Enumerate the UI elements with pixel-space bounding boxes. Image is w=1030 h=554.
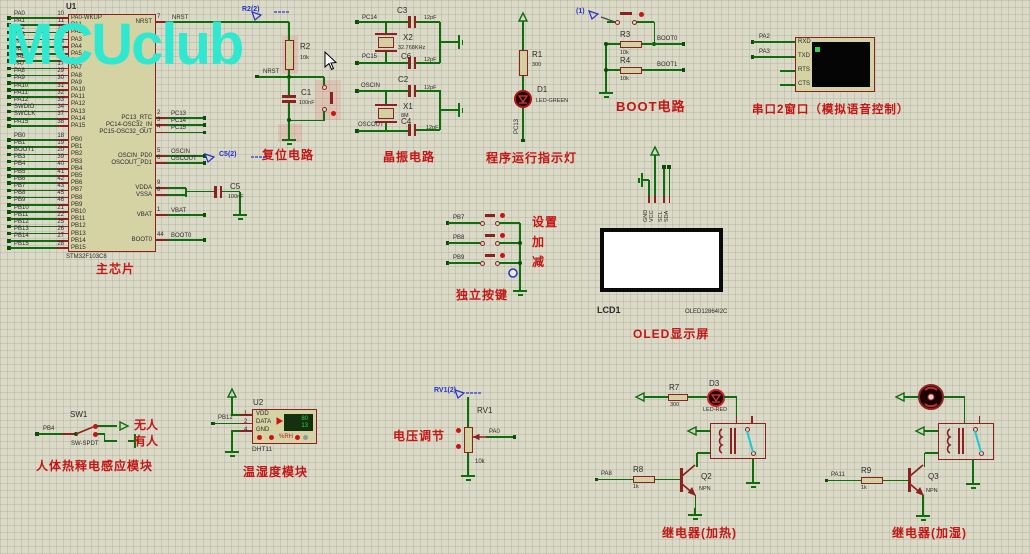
wire: [288, 22, 290, 40]
pin-number: 31: [42, 83, 64, 89]
pin-name: VBAT: [96, 212, 152, 218]
dht-ref: U2: [253, 399, 263, 407]
resistor-R2: [285, 40, 294, 70]
button-cap: [330, 92, 333, 104]
pin-name: PA12: [71, 101, 85, 107]
power-arrow: [651, 147, 659, 155]
led-part-D3: LED-RED: [703, 408, 727, 414]
pin-name: PB13: [71, 231, 86, 237]
ground-symbol: [921, 519, 926, 521]
contact: [973, 427, 978, 432]
pin-number: 45: [42, 190, 64, 196]
actuator-dot[interactable]: [295, 435, 300, 440]
wire: [288, 77, 290, 95]
pin-number: 9: [157, 180, 160, 186]
cap-val-C2: 12pF: [424, 86, 437, 92]
pin-name: PB10: [71, 209, 86, 215]
terminal-pin-TXD: TXD: [798, 53, 810, 59]
pin-number: 32: [42, 90, 64, 96]
net-label-PB8: PB8: [453, 235, 464, 241]
wire: [780, 84, 795, 86]
caption-pir: 人体热释电感应模块: [36, 460, 153, 473]
cap-val-C6: 12pF: [424, 58, 437, 64]
pin-stub: [663, 196, 665, 203]
pin-net-SWCLK: SWCLK: [14, 111, 35, 117]
pin-net-PB0: PB0: [14, 133, 25, 139]
chip-ref: U1: [66, 3, 76, 11]
key-function-PB8: 加: [532, 236, 545, 248]
wire: [167, 187, 186, 189]
pin-net-PA10: PA10: [14, 83, 28, 89]
pin-name: PB6: [71, 180, 82, 186]
res-ref-R8: R8: [633, 466, 643, 474]
pin-name: PB15: [71, 245, 86, 251]
actuator-dot[interactable]: [500, 253, 505, 258]
button-cap: [485, 234, 495, 237]
pin-number: 4: [157, 124, 160, 130]
net-label-PB4: PB4: [43, 426, 54, 432]
ground-symbol: [916, 515, 930, 517]
motor-icon: [919, 385, 943, 409]
switch-ref-SW1: SW1: [70, 411, 87, 419]
cap-ref-C5: C5: [230, 183, 240, 191]
wire: [167, 162, 204, 164]
ground-symbol: [751, 486, 756, 488]
transistor-type-Q2: NPN: [699, 487, 711, 493]
wire: [467, 397, 469, 427]
oled-display: [600, 228, 723, 292]
pin-name: OSCOUT_PD1: [96, 160, 152, 166]
pin-name: PB9: [71, 202, 82, 208]
ground-symbol: [746, 482, 760, 484]
relay-core: [734, 428, 736, 454]
dht-pin-DATA: DATA: [256, 419, 271, 425]
wire: [499, 262, 520, 264]
capacitor: [214, 186, 217, 198]
res-val-R8: 1k: [633, 485, 639, 491]
wire: [655, 479, 680, 481]
terminal-dot: [203, 161, 207, 165]
wire: [696, 453, 698, 467]
wire: [597, 479, 633, 481]
motor-detail-icon: [925, 404, 937, 406]
pin-name: PA15: [71, 123, 85, 129]
pin-net-PB5: PB5: [14, 169, 25, 175]
wire: [925, 452, 939, 454]
terminal-pin-RXD: RXD: [798, 39, 811, 45]
contact[interactable]: [322, 85, 327, 90]
caption-relay-hum: 继电器(加湿): [892, 527, 967, 540]
net-label-PA0: PA0: [489, 429, 500, 435]
net-label-BOOT1: BOOT1: [657, 62, 677, 68]
pin-number: 44: [157, 232, 164, 238]
cap-val-C1: 100nF: [299, 101, 315, 107]
pin-number: 22: [42, 212, 64, 218]
pin-number: 34: [42, 104, 64, 110]
probe-C5: C5(2): [219, 151, 237, 158]
pin-name: PA10: [71, 87, 85, 93]
terminal-screen[interactable]: [812, 42, 870, 87]
wire: [499, 222, 520, 224]
pin-stub: [979, 416, 981, 423]
wire: [606, 69, 620, 71]
wire: [644, 396, 668, 398]
caption-run-led: 程序运行指示灯: [486, 152, 577, 165]
pin-net-PC13: PC13: [171, 111, 186, 117]
wire: [753, 41, 795, 43]
wire: [972, 460, 974, 477]
wire: [214, 423, 240, 425]
res-ref-R4: R4: [620, 57, 630, 65]
relay-core: [730, 428, 732, 454]
pin-net-PA15: PA15: [14, 119, 28, 125]
relay-body: [710, 423, 766, 459]
wire: [385, 123, 387, 130]
transistor-ref-Q2: Q2: [701, 473, 712, 481]
dht-pin-number: 4: [244, 427, 247, 433]
relay-body: [938, 423, 994, 460]
led-D1: [514, 90, 532, 108]
resistor-R7: [668, 394, 688, 401]
cap-ref-C6: C6: [401, 53, 411, 61]
mouse-cursor-icon: [325, 52, 336, 70]
pin-number: 38: [42, 119, 64, 125]
led-ref-D3: D3: [709, 380, 719, 388]
probe-arrow-icon: [205, 154, 214, 162]
pir-state-top: 无人: [134, 419, 158, 431]
relay-core: [962, 428, 964, 454]
net-label-PC14: PC14: [362, 15, 377, 21]
wire: [97, 425, 117, 427]
wire: [922, 495, 924, 509]
ground-symbol: [458, 35, 460, 49]
actuator-dot[interactable]: [456, 444, 461, 449]
pin-name: PB7: [71, 187, 82, 193]
pin-number: 33: [42, 97, 64, 103]
power-arrow: [636, 393, 644, 401]
pin-name: PB8: [71, 195, 82, 201]
select-tint: [315, 80, 341, 120]
pir-state-bottom: 有人: [134, 435, 158, 447]
dht-temp-value: 13: [288, 423, 308, 429]
actuator-dot[interactable]: [269, 435, 274, 440]
contact: [745, 427, 750, 432]
wire: [358, 62, 408, 64]
key-function-PB7: 设置: [532, 216, 558, 228]
collector: [682, 465, 695, 476]
net-label-PB9: PB9: [453, 255, 464, 261]
wire: [440, 41, 452, 43]
wire: [289, 120, 325, 122]
pin-net-PB7: PB7: [14, 183, 25, 189]
power-arrow: [120, 422, 128, 430]
terminal-dot: [255, 75, 259, 79]
ground-symbol: [282, 139, 296, 141]
res-ref-R7: R7: [669, 384, 679, 392]
pin-net-OSCOUT: OSCOUT: [171, 156, 197, 162]
wire: [499, 242, 520, 244]
wire: [323, 77, 325, 85]
pin-number: 2: [157, 110, 160, 116]
pin-net-PB15: PB15: [14, 241, 29, 247]
contact[interactable]: [480, 221, 485, 226]
xtal-ref-X2: X2: [403, 34, 413, 42]
cap-val-C4: 12pF: [426, 126, 439, 132]
net-label-BOOT0: BOOT0: [657, 36, 677, 42]
pot-body-RV1: [464, 427, 473, 453]
button-cap: [620, 12, 632, 15]
dht-pin-number: 2: [244, 419, 247, 425]
caption-oled: OLED显示屏: [633, 328, 709, 341]
pot-wiper-arrow: [474, 435, 479, 440]
pin-number: 46: [42, 197, 64, 203]
pin-net-PB11: PB11: [14, 212, 28, 218]
pin-number: 5: [157, 148, 160, 154]
contact[interactable]: [480, 261, 485, 266]
relay-core: [958, 428, 960, 454]
pin-net-PC15: PC15: [171, 125, 186, 131]
pin-net-BOOT1: BOOT1: [14, 147, 34, 153]
net-label-PA8: PA8: [601, 471, 612, 477]
wire: [642, 43, 683, 45]
pin-number: 39: [42, 154, 64, 160]
pin-name: PC13_RTC: [96, 115, 152, 121]
caption-crystal: 晶振电路: [383, 151, 435, 164]
pin-net-PB6: PB6: [14, 176, 25, 182]
wire: [695, 495, 697, 508]
ground-symbol: [233, 214, 247, 216]
contact: [979, 451, 984, 456]
pot-val-RV1: 10k: [475, 459, 485, 465]
resistor-R1: [519, 50, 528, 76]
wire: [167, 194, 186, 196]
pin-stub: [156, 132, 167, 134]
contact: [751, 451, 756, 456]
wire: [358, 130, 408, 132]
actuator-dot[interactable]: [257, 435, 262, 440]
pin-stub: [736, 416, 738, 423]
wire: [827, 480, 861, 482]
wire: [10, 125, 57, 127]
ground-symbol: [513, 290, 527, 292]
oled-part: OLED12864I2C: [685, 309, 727, 315]
wire: [752, 459, 754, 476]
wire: [605, 44, 607, 86]
net-label-PC13: PC13: [514, 119, 520, 134]
actuator-dot: [303, 435, 308, 440]
ground-symbol: [599, 92, 613, 94]
chip-part: STM32F103C8: [66, 254, 107, 260]
junction-dot: [604, 42, 608, 46]
pin-name: PB2: [71, 151, 82, 157]
pin-number: 27: [42, 233, 64, 239]
pin-net-BOOT0: BOOT0: [171, 233, 191, 239]
res-val-R9: 1k: [861, 486, 867, 492]
capacitor: [282, 95, 296, 98]
switch-lever-SW1: [76, 427, 93, 434]
ground-symbol: [638, 178, 640, 183]
wire: [185, 188, 187, 197]
pin-name: PB3: [71, 159, 82, 165]
actuator-dot[interactable]: [331, 111, 336, 116]
pin-net-SWDIO: SWDIO: [14, 104, 34, 110]
pin-name: BOOT0: [96, 237, 152, 243]
dht-pin-GND: GND: [256, 427, 269, 433]
button-cap: [485, 214, 495, 217]
xtal-ref-X1: X1: [403, 103, 413, 111]
wire: [185, 191, 214, 193]
res-val-R7: 300: [670, 403, 679, 409]
pin-name: PA9: [71, 80, 82, 86]
pin-number: 20: [42, 147, 64, 153]
pin-net-PB13: PB13: [14, 226, 29, 232]
wire: [448, 242, 480, 244]
net-label-PA11: PA11: [831, 472, 845, 478]
wire: [519, 223, 521, 284]
wire: [231, 397, 233, 415]
wire: [883, 480, 908, 482]
pin-name: PA14: [71, 116, 85, 122]
actuator-dot[interactable]: [456, 428, 461, 433]
wire: [654, 22, 656, 44]
junction-dot: [604, 68, 608, 72]
actuator-dot[interactable]: [639, 12, 644, 17]
pin-name: VSSA: [96, 192, 152, 198]
caption-main-chip: 主芯片: [96, 263, 135, 276]
terminal-dot: [203, 116, 207, 120]
pin-stub: [156, 214, 167, 216]
probe-arrow-icon: [589, 11, 598, 19]
contact[interactable]: [480, 241, 485, 246]
capacitor: [408, 16, 411, 28]
terminal-pin-CTS: CTS: [798, 81, 810, 87]
wire: [10, 247, 57, 249]
net-label-OSCIN: OSCIN: [361, 83, 380, 89]
emitter-arrow: [917, 488, 924, 495]
pin-number: 26: [42, 226, 64, 232]
actuator-dot[interactable]: [500, 213, 505, 218]
dht-pin-VDD: VDD: [256, 411, 269, 417]
wire: [606, 43, 620, 45]
power-arrow: [916, 427, 924, 435]
ground-symbol: [225, 451, 239, 453]
ground-symbol: [458, 103, 460, 117]
caption-serial: 串口2窗口（模拟语音控制）: [752, 104, 909, 117]
motor-detail-icon: [925, 388, 937, 390]
oled-pin-VCC: VCC: [650, 210, 656, 222]
pin-number: 18: [42, 133, 64, 139]
pin-name: PB11: [71, 216, 85, 222]
ground-symbol: [287, 143, 292, 145]
cap-val-C5: 100nF: [228, 195, 244, 201]
pin-number: 3: [157, 117, 160, 123]
cap-ref-C3: C3: [397, 7, 407, 15]
ground-symbol: [971, 487, 976, 489]
xtal-bar: [375, 33, 397, 35]
dht-pin-number: 1: [244, 411, 247, 417]
oled-pin-SDA: SDA: [665, 211, 671, 222]
power-arrow: [896, 393, 904, 401]
pin-net-PB1: PB1: [14, 140, 25, 146]
terminal-dot: [203, 154, 207, 158]
terminal-dot: [662, 165, 666, 169]
res-val-R4: 10k: [620, 77, 629, 83]
ground-symbol: [966, 483, 980, 485]
emitter: [682, 484, 695, 495]
pin-stub: [156, 239, 167, 241]
net-label-PB7: PB7: [453, 215, 464, 221]
res-ref-R9: R9: [861, 467, 871, 475]
pin-name: PA11: [71, 94, 85, 100]
wire: [448, 262, 480, 264]
terminal-dot: [203, 131, 207, 135]
wire: [258, 76, 324, 78]
net-label-PA2: PA2: [759, 34, 770, 40]
pin-name: PA13: [71, 109, 85, 115]
pin-name: PB12: [71, 223, 86, 229]
pin-name: PB5: [71, 173, 82, 179]
wire: [964, 397, 966, 423]
resistor-R9: [861, 477, 883, 484]
wire: [697, 452, 710, 454]
ground-symbol: [238, 218, 243, 220]
transistor-Q2: [680, 468, 683, 492]
terminal-dot: [521, 139, 525, 143]
wire: [448, 222, 480, 224]
motor-hub-icon: [928, 394, 934, 400]
terminal-dot: [203, 213, 207, 217]
dht-rh-label: %RH: [279, 434, 293, 440]
pin-stub: [57, 125, 68, 127]
terminal-dot: [682, 68, 686, 72]
res-ref-R3: R3: [620, 31, 630, 39]
led-ref-D1: D1: [537, 86, 547, 94]
pin-name: PC14-OSC32_IN: [96, 122, 152, 128]
pin-number: 21: [42, 205, 64, 211]
wire: [522, 76, 524, 90]
switch-part-SW1: SW-SPDT: [71, 441, 99, 447]
pin-number: 37: [42, 111, 64, 117]
junction-dot: [518, 261, 522, 265]
power-arrow: [519, 13, 527, 21]
pin-number: 6: [157, 155, 160, 161]
res-val-R2: 10k: [300, 56, 309, 62]
power-arrow: [228, 389, 236, 397]
ground-symbol: [604, 96, 609, 98]
pin-net-PA11: PA11: [14, 90, 28, 96]
ground-symbol: [518, 294, 523, 296]
pin-number: 25: [42, 219, 64, 225]
caption-reset: 复位电路: [262, 149, 314, 162]
transistor-Q3: [908, 468, 911, 492]
pin-stub: [156, 194, 167, 196]
emitter: [910, 484, 923, 495]
collector: [910, 465, 923, 476]
actuator-dot[interactable]: [500, 233, 505, 238]
transistor-type-Q3: NPN: [926, 489, 938, 495]
net-label-PC15: PC15: [362, 54, 377, 60]
pin-net-PB4: PB4: [14, 161, 25, 167]
pot-ref-RV1: RV1: [477, 407, 492, 415]
emitter-arrow: [689, 488, 696, 495]
res-ref-R2: R2: [300, 43, 310, 51]
pin-net-PB8: PB8: [14, 190, 25, 196]
caption-relay-heat: 继电器(加热): [662, 527, 737, 540]
xtal-val-X1: 8M: [401, 114, 409, 120]
contact[interactable]: [615, 20, 620, 25]
wire: [522, 108, 524, 140]
pin-number: 43: [42, 183, 64, 189]
